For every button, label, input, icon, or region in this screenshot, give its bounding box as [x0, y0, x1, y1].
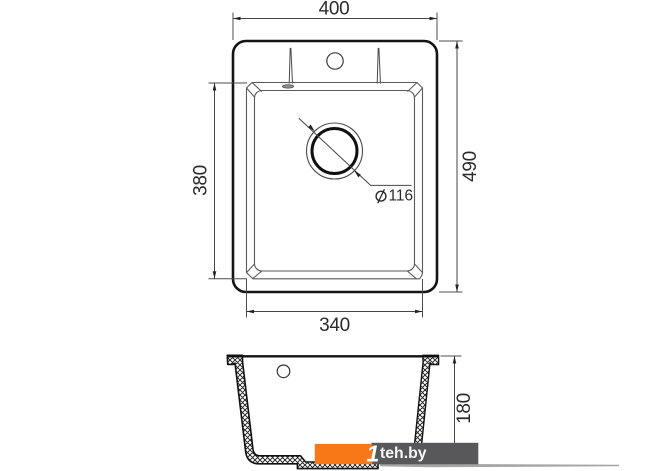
svg-text:380: 380: [191, 165, 212, 196]
svg-text:340: 340: [319, 315, 350, 336]
svg-text:116: 116: [389, 188, 414, 205]
svg-text:180: 180: [454, 393, 475, 424]
svg-text:400: 400: [319, 0, 350, 19]
svg-text:1: 1: [367, 441, 380, 467]
svg-text:teh.by: teh.by: [380, 445, 427, 462]
svg-text:490: 490: [460, 151, 481, 182]
